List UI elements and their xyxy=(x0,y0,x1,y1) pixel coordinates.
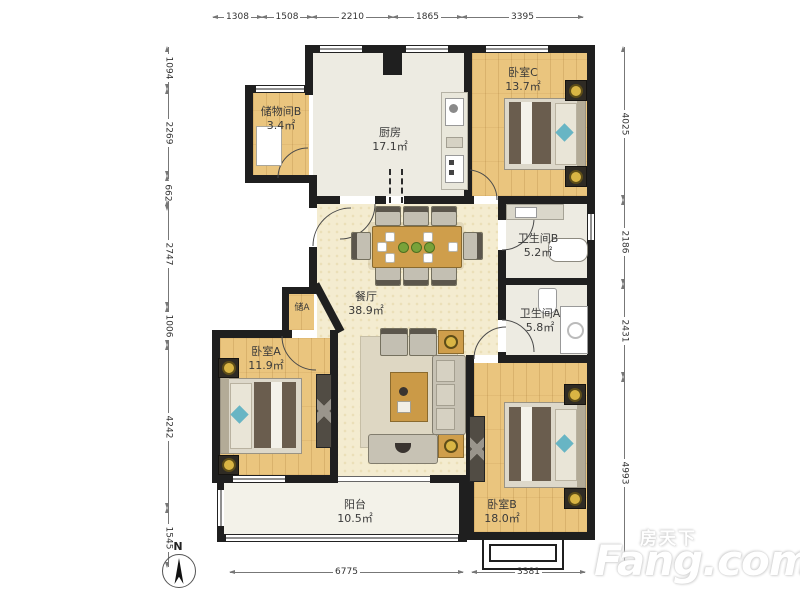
plate-icon xyxy=(377,242,387,252)
watermark-en: Fang.com xyxy=(594,536,800,585)
room-label-storage-a: 储A xyxy=(294,303,309,313)
wardrobe xyxy=(316,374,332,448)
floorplan-canvas: 储物间B3.4㎡ 厨房17.1㎡ 卧室C13.7㎡ 卫生间B5.2㎡ 卫生间A5… xyxy=(0,0,800,600)
room-label-bath-a: 卫生间A5.8㎡ xyxy=(520,307,561,335)
dimension-top: 1508 xyxy=(262,11,312,23)
nightstand xyxy=(218,358,239,378)
sink-basin-icon xyxy=(449,104,458,113)
nightstand xyxy=(565,166,587,187)
small-appliance xyxy=(446,137,463,148)
armchair xyxy=(409,328,437,356)
washer xyxy=(560,306,588,354)
room-label-balcony: 阳台10.5㎡ xyxy=(337,498,373,526)
dimension-left: 4242 xyxy=(162,345,174,508)
bed-headboard xyxy=(577,401,585,487)
loveseat xyxy=(368,434,438,464)
nightstand xyxy=(218,455,239,475)
room-label-bath-b: 卫生间B5.2㎡ xyxy=(518,232,559,260)
bed-headboard xyxy=(221,377,229,453)
north-arrow-icon xyxy=(172,558,186,584)
bowl-icon xyxy=(411,242,422,253)
dining-chair xyxy=(431,206,457,226)
room-label-storage-b: 储物间B3.4㎡ xyxy=(261,105,302,133)
dimension-bottom: 6775 xyxy=(230,566,463,578)
dining-chair xyxy=(375,206,401,226)
dimension-top: 2210 xyxy=(312,11,393,23)
bed-runner xyxy=(521,102,532,164)
dimension-top: 1308 xyxy=(213,11,262,23)
lamp-icon xyxy=(568,388,582,402)
dimension-left: 2269 xyxy=(162,89,174,176)
coffee-table xyxy=(390,372,428,422)
dining-chair xyxy=(351,232,371,260)
dining-chair xyxy=(431,266,457,286)
bed xyxy=(504,402,586,488)
dimension-left: 1006 xyxy=(162,307,174,345)
plate-icon xyxy=(385,253,395,263)
lamp-icon xyxy=(568,492,582,506)
dimension-top: 1865 xyxy=(393,11,462,23)
sofa-cushion xyxy=(436,384,455,406)
dimension-left: 1094 xyxy=(162,47,174,89)
lamp-icon xyxy=(222,458,236,472)
plate-icon xyxy=(448,242,458,252)
door-arcs xyxy=(0,0,800,600)
room-label-kitchen: 厨房17.1㎡ xyxy=(372,126,408,154)
kitchen-counter xyxy=(441,92,468,190)
lamp-icon xyxy=(444,335,458,349)
nightstand xyxy=(565,80,587,101)
nightstand xyxy=(564,384,586,405)
room-label-bedroom-c: 卧室C13.7㎡ xyxy=(505,66,541,94)
dimension-left: 2747 xyxy=(162,201,174,307)
dimension-bottom: 3381 xyxy=(472,566,585,578)
wardrobe xyxy=(469,416,485,482)
decor-card-icon xyxy=(397,401,411,413)
sink-icon xyxy=(515,207,537,218)
side-table xyxy=(438,330,464,354)
dining-chair xyxy=(403,266,429,286)
dining-chair xyxy=(375,266,401,286)
lamp-icon xyxy=(222,361,236,375)
dimension-right: 2186 xyxy=(618,200,630,284)
lamp-icon xyxy=(569,170,583,184)
loveseat-pillow-icon xyxy=(395,443,411,453)
bed-runner xyxy=(521,407,532,481)
washer-door-icon xyxy=(567,322,584,339)
sofa-cushion xyxy=(436,360,455,382)
side-table xyxy=(438,434,464,458)
bed-runner xyxy=(271,382,282,448)
dining-table xyxy=(372,226,462,268)
dining-chair xyxy=(463,232,483,260)
sofa-cushion xyxy=(436,408,455,430)
burner-icon xyxy=(449,170,454,175)
plate-icon xyxy=(385,232,395,242)
dimension-left: 662 xyxy=(162,176,174,201)
bath-vanity xyxy=(506,204,564,220)
bowl-icon xyxy=(424,242,435,253)
bowl-icon xyxy=(398,242,409,253)
decor-icon xyxy=(399,387,408,396)
plate-icon xyxy=(423,232,433,242)
burner-icon xyxy=(449,160,454,165)
lamp-icon xyxy=(444,439,458,453)
room-label-dining: 餐厅38.9㎡ xyxy=(348,290,384,318)
plate-icon xyxy=(423,253,433,263)
dining-chair xyxy=(403,206,429,226)
compass-n-label: N xyxy=(158,540,198,553)
sofa xyxy=(432,355,466,435)
compass: N xyxy=(158,540,198,592)
watermark: 房天下 Fang.com xyxy=(590,518,800,598)
bed xyxy=(220,378,302,454)
dimension-right: 4025 xyxy=(618,47,630,200)
armchair xyxy=(380,328,408,356)
compass-circle xyxy=(162,554,196,588)
dimension-top: 3395 xyxy=(462,11,583,23)
room-label-bedroom-b: 卧室B18.0㎡ xyxy=(484,498,520,526)
stove xyxy=(445,155,464,183)
bed xyxy=(504,98,586,170)
nightstand xyxy=(564,488,586,509)
lamp-icon xyxy=(569,84,583,98)
dimension-right: 2431 xyxy=(618,284,630,377)
bed-headboard xyxy=(577,97,585,169)
room-label-bedroom-a: 卧室A11.9㎡ xyxy=(248,345,284,373)
